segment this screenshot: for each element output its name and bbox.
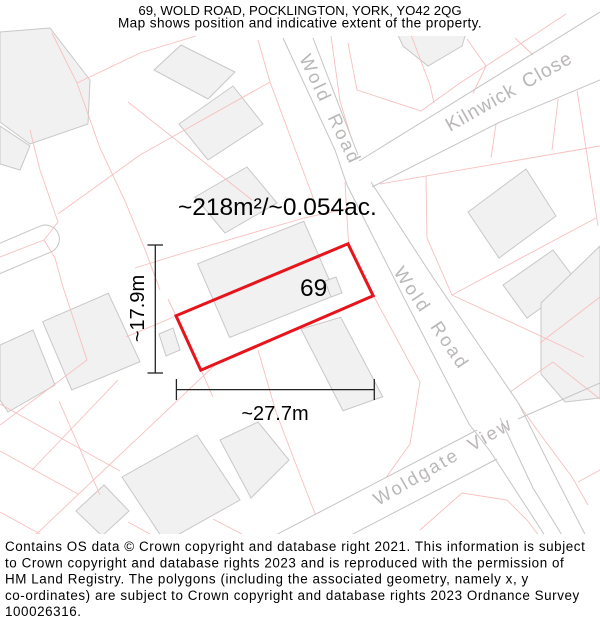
svg-text:69: 69 [300, 275, 327, 302]
svg-text:co-ordinates) are subject to C: co-ordinates) are subject to Crown copyr… [5, 588, 580, 603]
svg-text:HM Land Registry. The polygons: HM Land Registry. The polygons (includin… [5, 572, 529, 587]
svg-text:100026316.: 100026316. [5, 604, 82, 619]
svg-text:Map shows position and indicat: Map shows position and indicative extent… [118, 16, 482, 31]
svg-text:~27.7m: ~27.7m [241, 403, 308, 425]
svg-text:~218m²/~0.054ac.: ~218m²/~0.054ac. [178, 194, 377, 221]
svg-text:to Crown copyright and databas: to Crown copyright and database rights 2… [5, 555, 564, 570]
svg-text:Contains OS data © Crown copyr: Contains OS data © Crown copyright and d… [5, 539, 585, 554]
svg-text:~17.9m: ~17.9m [127, 275, 149, 342]
